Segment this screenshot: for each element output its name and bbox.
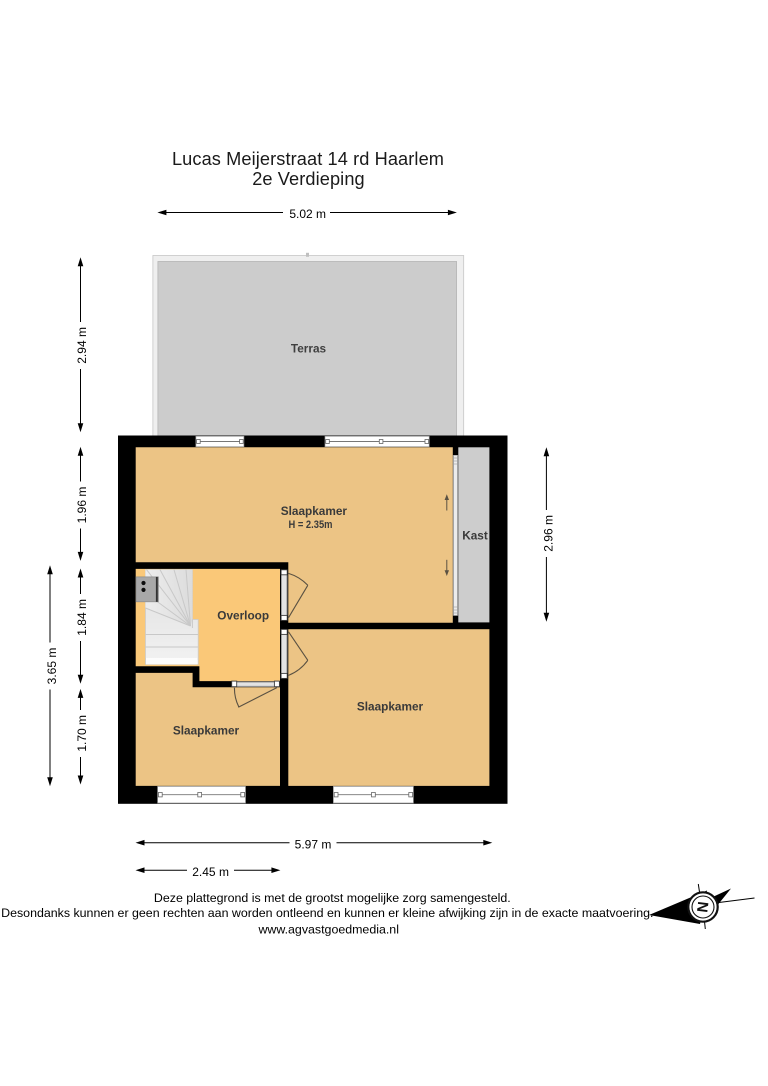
svg-text:5.97 m: 5.97 m bbox=[295, 837, 332, 851]
svg-text:Overloop: Overloop bbox=[217, 608, 269, 622]
svg-text:Slaapkamer: Slaapkamer bbox=[357, 700, 424, 714]
svg-text:Lucas Meijerstraat 14 rd Haarl: Lucas Meijerstraat 14 rd Haarlem bbox=[172, 149, 444, 169]
svg-text:Slaapkamer: Slaapkamer bbox=[281, 504, 348, 518]
svg-text:2.94 m: 2.94 m bbox=[75, 327, 89, 364]
svg-text:2.45 m: 2.45 m bbox=[192, 865, 229, 879]
svg-text:www.agvastgoedmedia.nl: www.agvastgoedmedia.nl bbox=[257, 922, 399, 936]
svg-text:2e Verdieping: 2e Verdieping bbox=[252, 169, 365, 189]
svg-text:H = 2.35m: H = 2.35m bbox=[289, 519, 333, 531]
svg-text:2.96 m: 2.96 m bbox=[541, 515, 555, 552]
svg-text:3.65 m: 3.65 m bbox=[45, 648, 59, 685]
svg-text:1.84 m: 1.84 m bbox=[75, 599, 89, 636]
svg-text:N: N bbox=[693, 900, 711, 913]
svg-text:5.02 m: 5.02 m bbox=[289, 207, 326, 221]
svg-text:Terras: Terras bbox=[291, 341, 327, 355]
svg-text:Desondanks kunnen er geen rech: Desondanks kunnen er geen rechten aan wo… bbox=[1, 906, 653, 920]
svg-text:Slaapkamer: Slaapkamer bbox=[173, 724, 240, 738]
svg-text:1.96 m: 1.96 m bbox=[75, 487, 89, 524]
svg-text:Kast: Kast bbox=[462, 529, 488, 543]
svg-text:Deze plattegrond is met de gro: Deze plattegrond is met de grootst mogel… bbox=[154, 891, 511, 905]
svg-text:1.70 m: 1.70 m bbox=[75, 715, 89, 752]
